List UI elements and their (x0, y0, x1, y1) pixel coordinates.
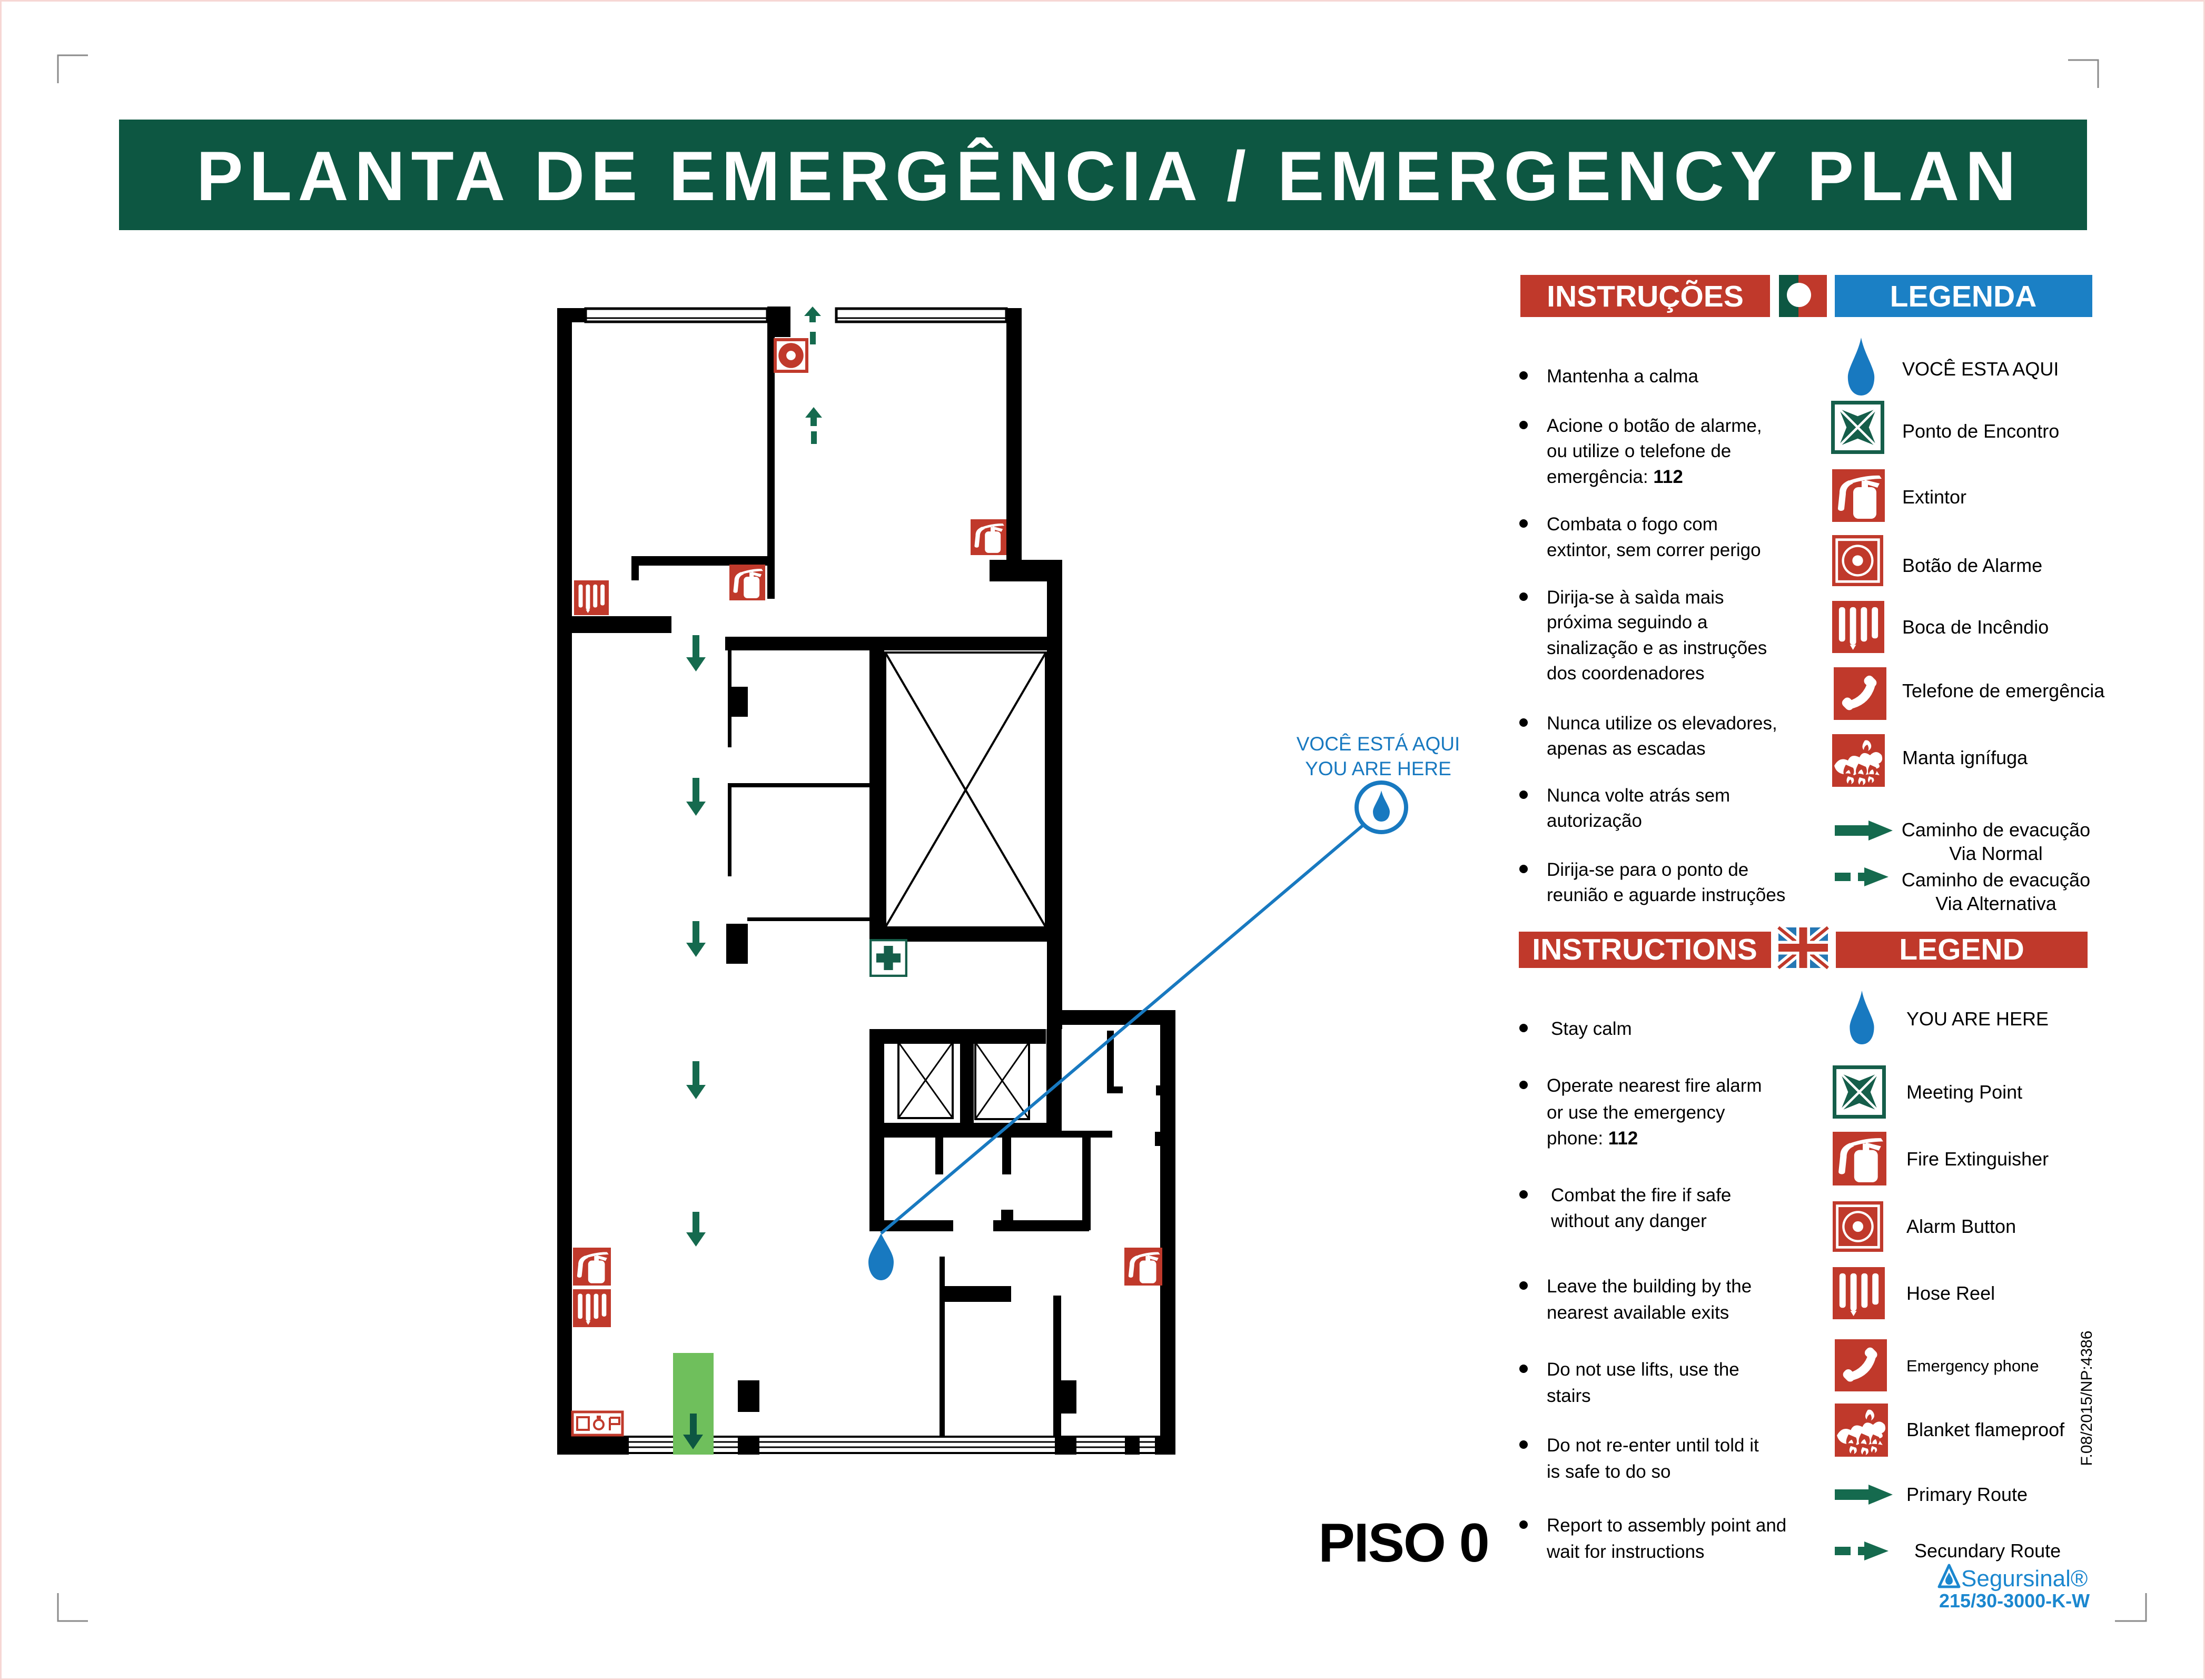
svg-text:próxima seguindo a: próxima seguindo a (1547, 612, 1708, 633)
svg-text:YOU ARE HERE: YOU ARE HERE (1906, 1008, 2049, 1030)
svg-text:PISO 0: PISO 0 (1318, 1513, 1488, 1574)
svg-text:LEGENDA: LEGENDA (1890, 280, 2037, 313)
svg-text:Botão de Alarme: Botão de Alarme (1902, 555, 2042, 576)
svg-text:wait for instructions: wait for instructions (1546, 1541, 1705, 1562)
svg-text:Stay calm: Stay calm (1551, 1019, 1632, 1039)
svg-text:Nunca volte atrás sem: Nunca volte atrás sem (1547, 785, 1730, 806)
svg-text:Report to assembly point and: Report to assembly point and (1547, 1515, 1786, 1536)
svg-text:Caminho de evacução: Caminho de evacução (1902, 819, 2090, 841)
svg-text:Dirija-se para o ponto de: Dirija-se para o ponto de (1547, 859, 1748, 880)
svg-text:stairs: stairs (1547, 1386, 1591, 1406)
svg-text:Combata o fogo com: Combata o fogo com (1547, 514, 1718, 535)
svg-text:Primary Route: Primary Route (1906, 1484, 2028, 1505)
svg-text:INSTRUCTIONS: INSTRUCTIONS (1532, 933, 1757, 966)
svg-text:Operate nearest fire alarm: Operate nearest fire alarm (1547, 1075, 1762, 1096)
svg-text:Dirija-se à saìda mais: Dirija-se à saìda mais (1547, 587, 1724, 608)
svg-text:VOCÊ ESTA AQUI: VOCÊ ESTA AQUI (1902, 358, 2059, 380)
svg-text:215/30-3000-K-W: 215/30-3000-K-W (1939, 1590, 2090, 1612)
svg-text:Blanket flameproof: Blanket flameproof (1906, 1419, 2065, 1440)
svg-text:Meeting Point: Meeting Point (1906, 1081, 2022, 1103)
svg-text:Secundary Route: Secundary Route (1914, 1540, 2061, 1562)
svg-text:without any danger: without any danger (1550, 1211, 1707, 1231)
svg-text:Segursinal®: Segursinal® (1961, 1566, 2088, 1592)
svg-text:Telefone de emergência: Telefone de emergência (1902, 680, 2105, 701)
svg-text:LEGEND: LEGEND (1899, 933, 2024, 966)
svg-text:Ponto de Encontro: Ponto de Encontro (1902, 420, 2059, 442)
svg-text:Alarm Button: Alarm Button (1906, 1215, 2016, 1237)
svg-text:Do not use lifts, use the: Do not use lifts, use the (1547, 1359, 1739, 1380)
svg-text:Via Normal: Via Normal (1949, 843, 2042, 864)
svg-text:phone: 112: phone: 112 (1547, 1128, 1638, 1149)
svg-text:Boca de Incêndio: Boca de Incêndio (1902, 616, 2049, 638)
svg-text:VOCÊ ESTÁ AQUI: VOCÊ ESTÁ AQUI (1297, 733, 1460, 755)
svg-text:Manta ignífuga: Manta ignífuga (1902, 747, 2028, 768)
svg-text:Extintor: Extintor (1902, 486, 1966, 508)
svg-text:sinalização e as instruções: sinalização e as instruções (1547, 638, 1767, 658)
svg-text:extintor, sem correr perigo: extintor, sem correr perigo (1547, 540, 1761, 560)
svg-text:emergência: 112: emergência: 112 (1547, 467, 1683, 487)
svg-text:apenas as escadas: apenas as escadas (1547, 738, 1706, 759)
svg-text:Fire Extinguisher: Fire Extinguisher (1906, 1148, 2049, 1170)
svg-text:YOU ARE HERE: YOU ARE HERE (1305, 758, 1451, 779)
svg-text:Hose Reel: Hose Reel (1906, 1282, 1995, 1304)
svg-text:F.08/2015/NP:4386: F.08/2015/NP:4386 (2078, 1331, 2095, 1466)
svg-text:nearest available exits: nearest available exits (1547, 1302, 1729, 1323)
svg-text:Do not re-enter until told it: Do not re-enter until told it (1547, 1435, 1759, 1456)
svg-text:Via Alternativa: Via Alternativa (1935, 893, 2056, 914)
svg-text:Combat the fire if safe: Combat the fire if safe (1551, 1185, 1731, 1205)
svg-text:dos coordenadores: dos coordenadores (1547, 663, 1705, 684)
svg-text:is safe to do so: is safe to do so (1547, 1461, 1670, 1482)
svg-text:Emergency phone: Emergency phone (1906, 1357, 2039, 1375)
svg-text:or use the emergency: or use the emergency (1547, 1102, 1725, 1123)
svg-text:reunião e aguarde instruções: reunião e aguarde instruções (1547, 885, 1785, 905)
svg-text:Nunca utilize os elevadores,: Nunca utilize os elevadores, (1547, 713, 1777, 734)
svg-text:ou utilize o telefone de: ou utilize o telefone de (1547, 441, 1731, 461)
svg-text:INSTRUÇÕES: INSTRUÇÕES (1547, 280, 1744, 313)
svg-text:Mantenha a calma: Mantenha a calma (1547, 366, 1698, 387)
svg-text:Acione o botão de alarme,: Acione o botão de alarme, (1547, 416, 1762, 436)
svg-text:autorização: autorização (1547, 811, 1642, 831)
svg-text:PLANTA DE EMERGÊNCIA / EMERGEN: PLANTA DE EMERGÊNCIA / EMERGENCY PLAN (196, 137, 2022, 215)
svg-text:Caminho de evacução: Caminho de evacução (1902, 869, 2090, 891)
svg-text:Leave the building by the: Leave the building by the (1547, 1276, 1752, 1297)
